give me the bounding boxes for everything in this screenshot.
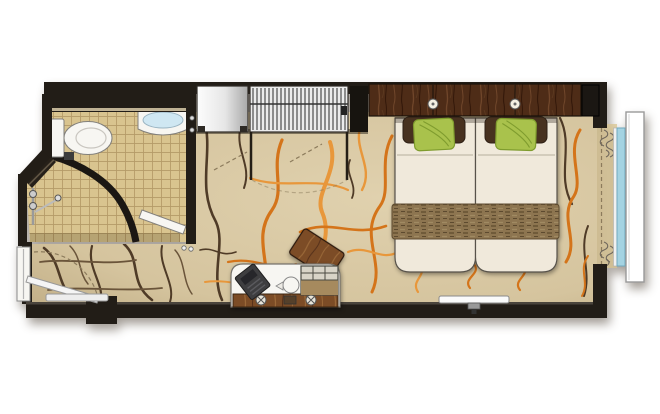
- washbasin: [138, 110, 188, 135]
- cabinet: [197, 86, 248, 132]
- desk-bolt: [306, 295, 316, 305]
- desk: [231, 263, 340, 307]
- minibar-unit: [350, 86, 368, 132]
- reading-light: [428, 99, 438, 109]
- green-pillow: [495, 118, 536, 150]
- bed-runner: [392, 204, 559, 239]
- minibar-tray: [301, 266, 338, 295]
- window-glass: [617, 128, 625, 266]
- reading-light: [510, 99, 520, 109]
- floor-plan: [0, 0, 660, 414]
- green-pillow: [413, 118, 455, 151]
- window-bay: [597, 112, 644, 282]
- window-frame-strip: [614, 128, 618, 266]
- desk-bolt: [256, 295, 266, 305]
- wardrobe: [250, 86, 348, 132]
- nightstand: [582, 85, 599, 116]
- headboard: [369, 84, 599, 116]
- closet-run: [196, 86, 368, 134]
- beds: [392, 117, 559, 272]
- floor-plan-canvas: [0, 0, 660, 414]
